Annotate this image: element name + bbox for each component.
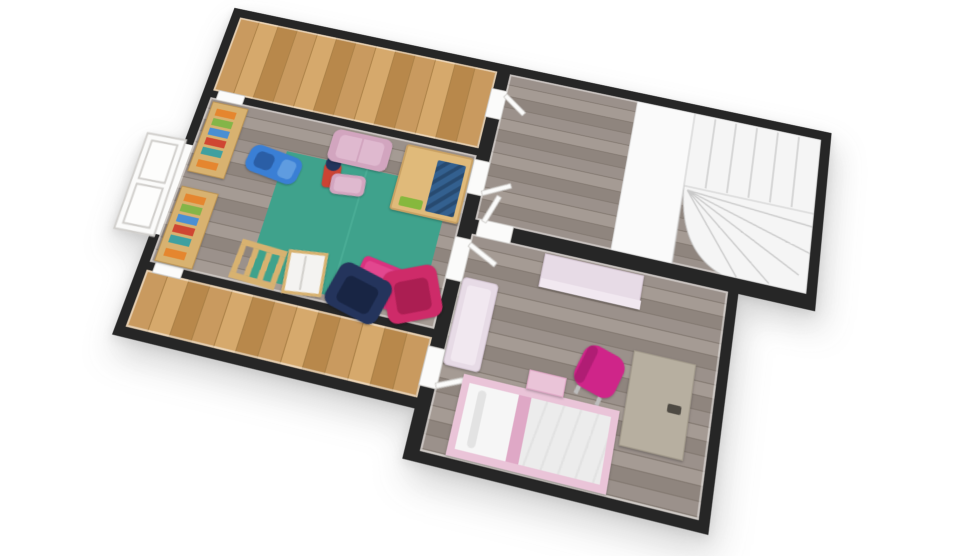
floorplan-stage: [0, 0, 960, 540]
activity-table-blue-top: [425, 160, 466, 217]
armchair-hot-pink-seat: [393, 277, 432, 316]
window-pane-top: [137, 139, 178, 184]
desk-accessory: [667, 403, 682, 415]
ottoman-mauve: [329, 173, 367, 197]
toy-car-hood: [276, 158, 298, 180]
armchair-navy-seat: [334, 274, 380, 316]
bed-pillow-ridge: [466, 390, 487, 449]
floor-plan: [94, 8, 831, 556]
ottoman-top: [333, 176, 363, 194]
toy-slide-line: [299, 256, 307, 290]
bed-duvet: [518, 398, 611, 485]
window-pane-bottom: [122, 183, 164, 230]
activity-table-lime-tray: [398, 196, 423, 210]
toy-slide-board: [281, 249, 329, 297]
toy-car-seat: [252, 150, 277, 172]
